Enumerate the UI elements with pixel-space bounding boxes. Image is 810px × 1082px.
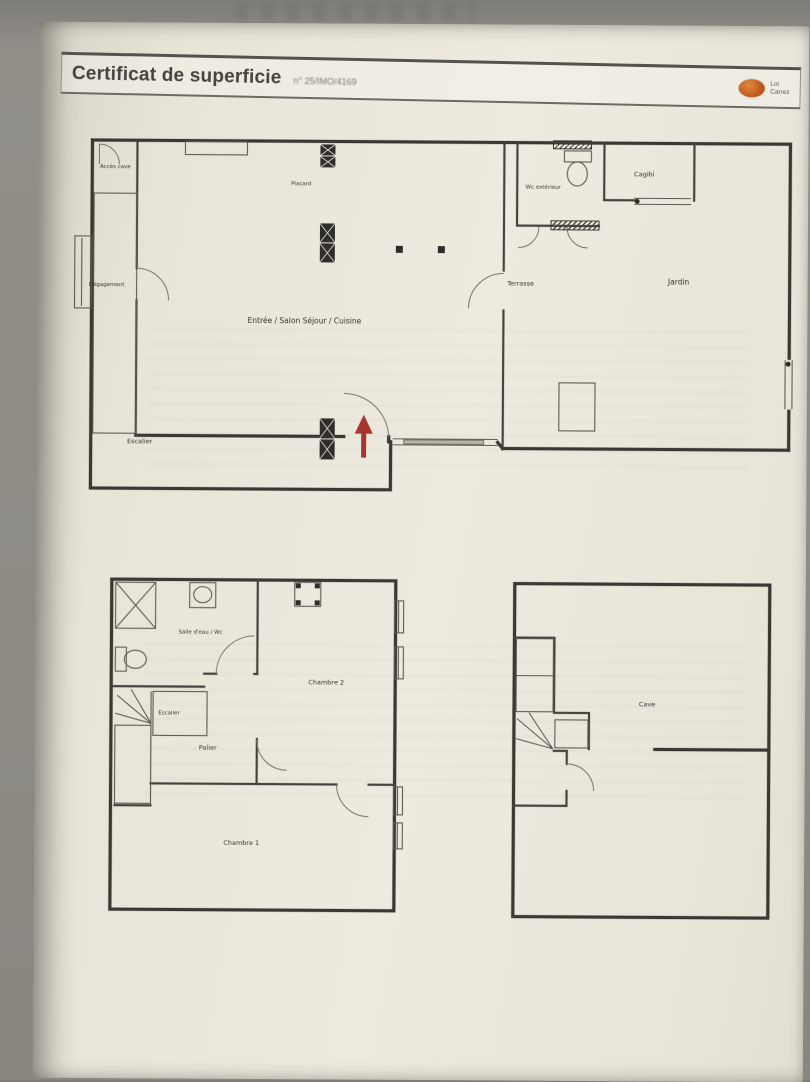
agency-logo-text: Loi Carrez (770, 81, 790, 96)
certificate-reference: n° 25/IMO/4169 (293, 76, 356, 87)
garden-gate (633, 198, 793, 409)
paper-document: Certificat de superficie n° 25/IMO/4169 … (33, 22, 809, 1082)
background-smudge (235, 4, 475, 20)
shower (116, 582, 156, 628)
entrance-arrow-icon (355, 415, 373, 458)
first-floor-plan-drawing: Salle d'eau / Wc Chambre 2 Escalier Pali… (106, 573, 406, 917)
radiator (295, 582, 321, 606)
garden-steps (559, 383, 595, 431)
label-escalier: Escalier (158, 710, 180, 716)
label-degagement: Dégagement (89, 281, 126, 288)
door-arcs (215, 636, 369, 817)
agency-logo: Loi Carrez (739, 79, 790, 98)
staircase (93, 144, 138, 433)
label-terrasse: Terrasse (506, 280, 534, 288)
chimney-columns (319, 144, 446, 460)
wc-fixture (564, 151, 591, 186)
interior-walls (513, 638, 769, 808)
label-jardin: Jardin (667, 277, 690, 286)
certificate-header: Certificat de superficie n° 25/IMO/4169 … (60, 52, 801, 109)
label-escalier: Escalier (127, 437, 153, 445)
interior-walls (136, 140, 695, 449)
sliding-door (393, 439, 498, 446)
logo-line2: Carrez (770, 88, 790, 96)
toilet (115, 647, 146, 671)
label-placard: Placard (291, 181, 311, 187)
first-floor-plan: Salle d'eau / Wc Chambre 2 Escalier Pali… (106, 573, 406, 922)
label-chambre-1: Chambre 1 (223, 839, 259, 847)
door-arcs (567, 764, 594, 791)
staircase (516, 639, 589, 749)
label-chambre-2: Chambre 2 (308, 678, 344, 686)
agency-logo-icon (739, 79, 765, 98)
label-wc: Wc extérieur (526, 184, 562, 191)
basement-plan-drawing: Cave (506, 579, 784, 929)
sink (190, 583, 216, 608)
label-cagibi: Cagibi (634, 170, 655, 178)
staircase (114, 689, 207, 806)
label-main-room: Entrée / Salon Séjour / Cuisine (248, 316, 362, 326)
door-arcs (136, 224, 588, 438)
label-cave: Cave (639, 700, 655, 708)
label-acces-cave: Accès cave (100, 163, 131, 170)
ground-floor-plan: Accès cave Dégagement Escalier Entrée / … (69, 118, 799, 513)
label-palier: Palier (199, 744, 217, 752)
page-title: Certificat de superficie (72, 63, 282, 89)
ground-floor-plan-drawing: Accès cave Dégagement Escalier Entrée / … (69, 118, 799, 508)
label-salle-eau: Salle d'eau / Wc (178, 630, 222, 636)
basement-plan: Cave (506, 579, 784, 934)
